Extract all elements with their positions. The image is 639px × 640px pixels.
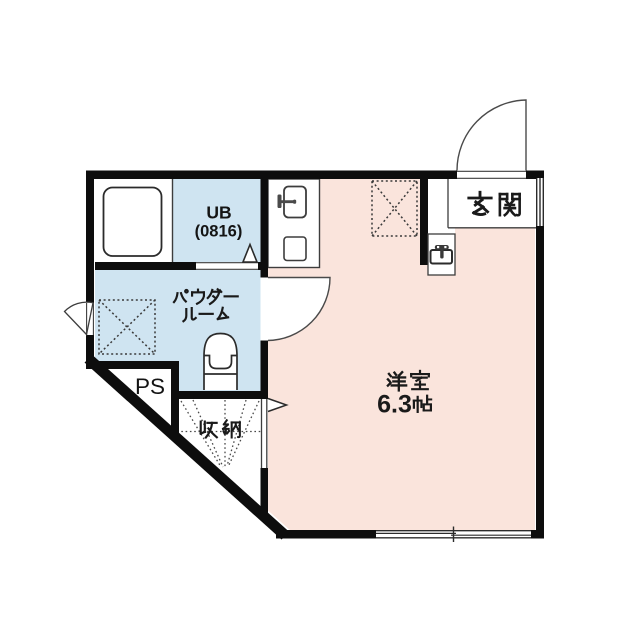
svg-text:PS: PS (135, 374, 165, 399)
svg-text:(0816): (0816) (195, 223, 243, 241)
svg-text:UB: UB (206, 203, 231, 223)
svg-text:6.3: 6.3 (377, 391, 412, 419)
